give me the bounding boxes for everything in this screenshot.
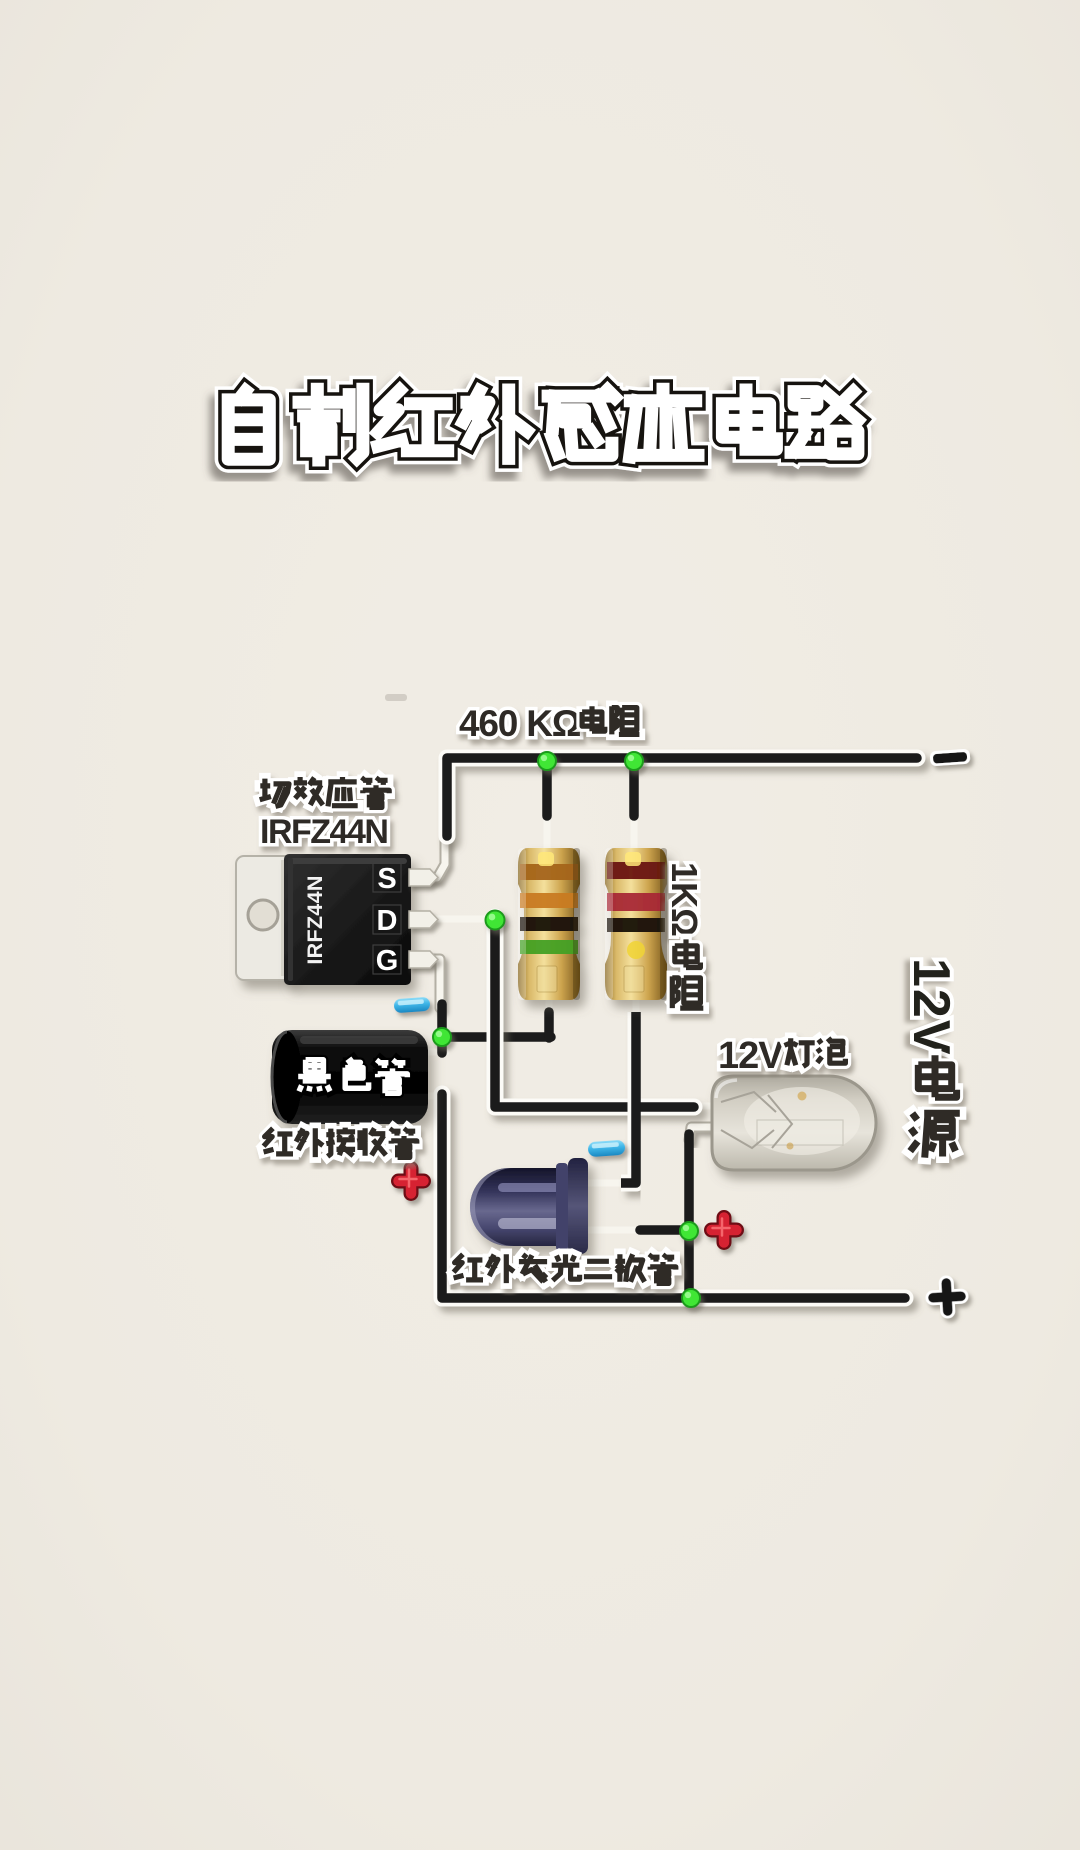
svg-text:G: G: [376, 945, 399, 977]
svg-text:D: D: [377, 905, 398, 937]
svg-text:12V: 12V: [718, 1035, 784, 1077]
svg-text:S: S: [377, 863, 396, 895]
svg-text:IRFZ44N: IRFZ44N: [303, 875, 327, 964]
svg-text:460 KΩ: 460 KΩ: [459, 703, 581, 744]
svg-text:12V: 12V: [902, 958, 960, 1057]
svg-text:IRFZ44N: IRFZ44N: [260, 813, 387, 851]
svg-text:1KΩ: 1KΩ: [664, 862, 705, 937]
